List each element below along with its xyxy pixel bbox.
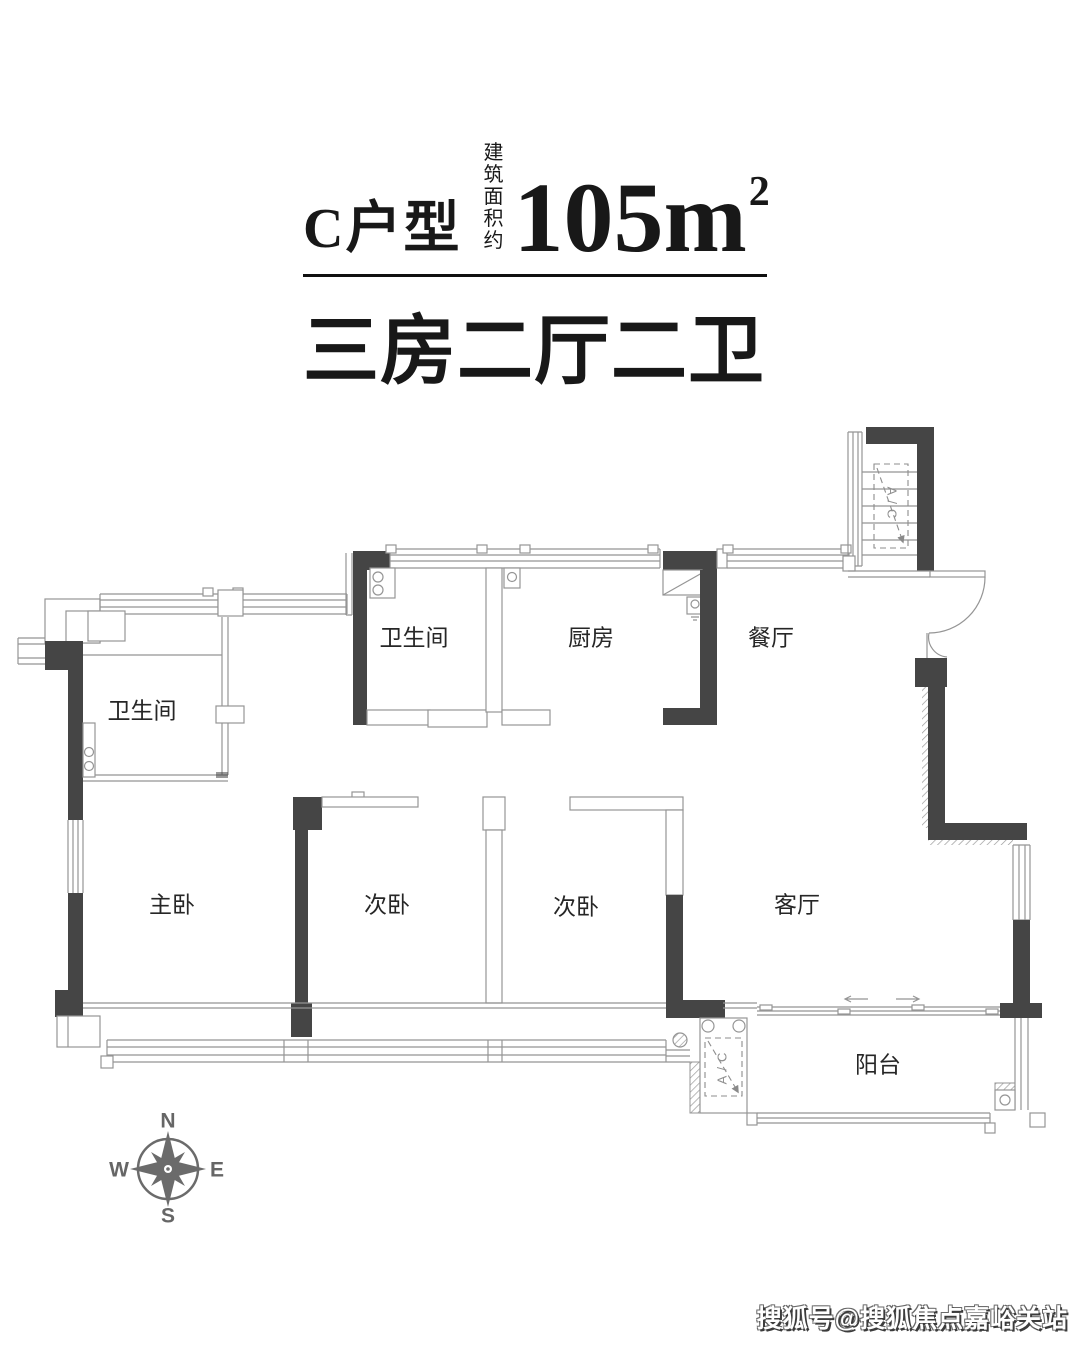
room-label-bathroom-upper: 卫生间 [380,625,449,650]
top-band [353,545,851,570]
room-label-bedroom-2: 次卧 [364,892,410,917]
entry-door-arc [929,577,985,633]
room-label-dining: 餐厅 [748,625,794,650]
room-label-balcony: 阳台 [855,1052,901,1077]
room-label-kitchen: 厨房 [568,625,614,650]
compass: N E S W [109,1110,224,1228]
living-bay-wall [922,687,1042,1018]
room-label-bathroom-lower: 卫生间 [108,698,177,723]
room-label-living: 客厅 [774,892,820,917]
room-label-bedroom-3: 次卧 [553,894,599,919]
compass-south-label: S [161,1205,175,1228]
stairwell: A/C [843,427,934,577]
compass-east-label: E [210,1159,224,1182]
room-label-master-bedroom: 主卧 [149,892,195,917]
balcony-sliding-door [757,996,1000,1015]
stair-ac-label: A/C [885,487,900,524]
compass-north-label: N [160,1110,175,1133]
balcony-ac-label: A/C [714,1048,729,1085]
floorplan-page: C户型 建筑 面积约 105m2 三房二厅二卫 [0,0,1080,1351]
floor-plan: A/C [0,0,1080,1351]
compass-west-label: W [109,1159,129,1182]
bathroom-lower-walls [83,611,244,781]
watermark: 搜狐号@搜狐焦点嘉峪关站 [757,1299,1068,1335]
top-left-section [18,553,352,670]
room-labels: 卫生间 卫生间 厨房 餐厅 主卧 次卧 次卧 客厅 阳台 [108,625,902,1077]
south-window-band [101,1040,690,1068]
entry-door [915,571,985,687]
